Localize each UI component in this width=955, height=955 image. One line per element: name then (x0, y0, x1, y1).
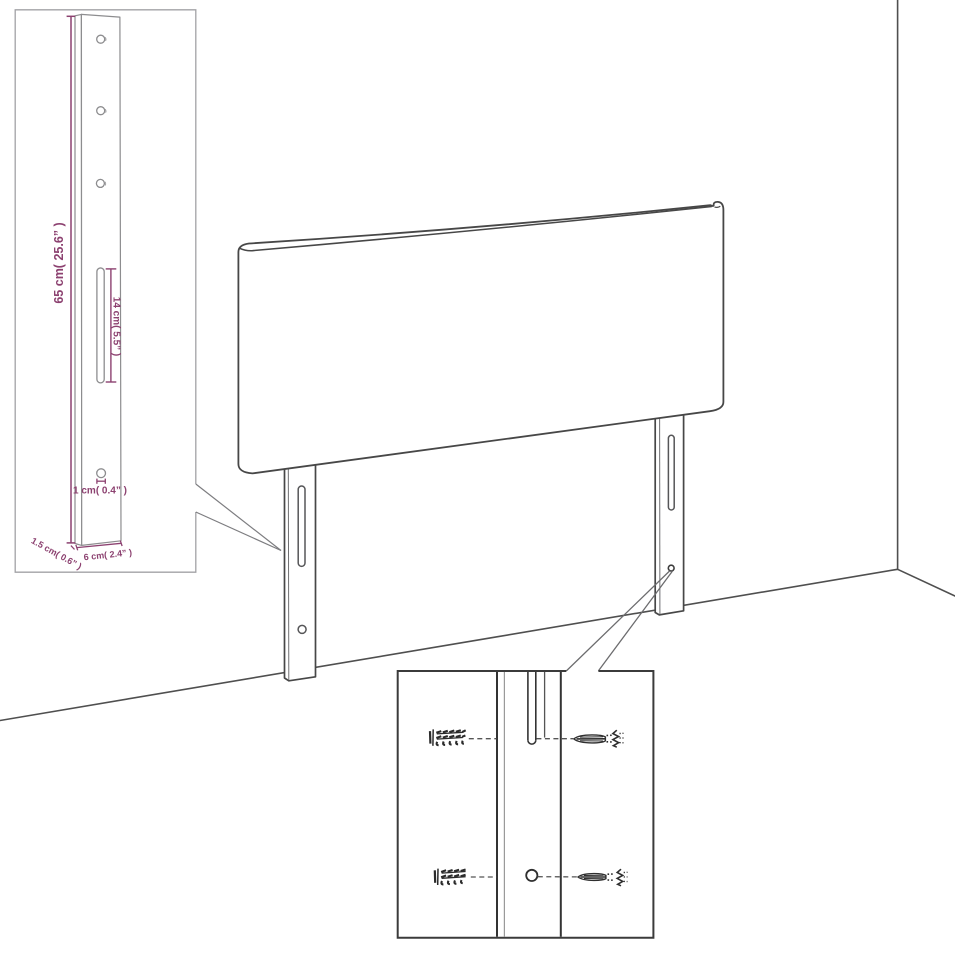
svg-text:14 cm( 5.5” ): 14 cm( 5.5” ) (111, 297, 122, 356)
svg-text:65 cm( 25.6” ): 65 cm( 25.6” ) (52, 222, 66, 303)
svg-text:1 cm( 0.4” ): 1 cm( 0.4” ) (73, 485, 127, 496)
